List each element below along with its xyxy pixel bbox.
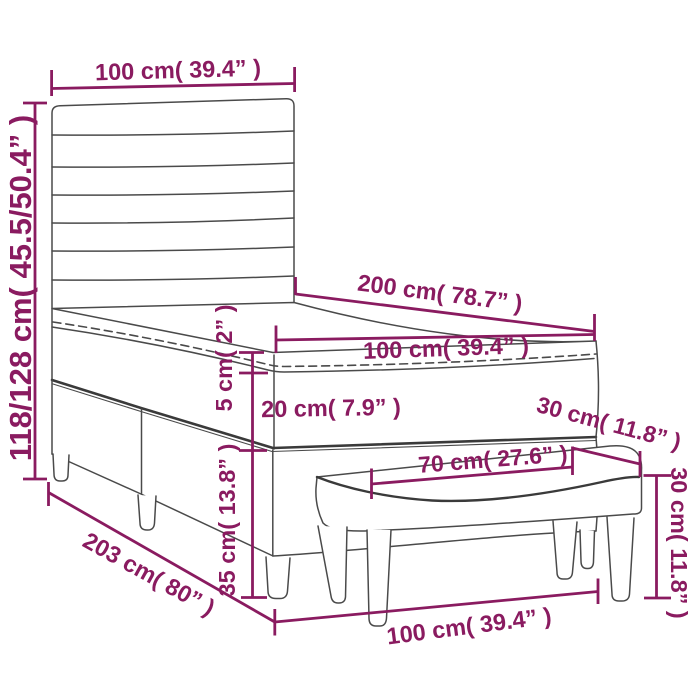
- svg-text:118/128 cm( 45.5/50.4” ): 118/128 cm( 45.5/50.4” ): [3, 115, 38, 461]
- svg-text:100 cm( 39.4” ): 100 cm( 39.4” ): [95, 55, 262, 86]
- svg-text:30 cm( 11.8” ): 30 cm( 11.8” ): [666, 467, 692, 619]
- svg-text:35 cm( 13.8” ): 35 cm( 13.8” ): [214, 444, 240, 597]
- svg-text:20 cm( 7.9” ): 20 cm( 7.9” ): [261, 394, 401, 422]
- svg-text:5 cm( 2” ): 5 cm( 2” ): [211, 304, 237, 411]
